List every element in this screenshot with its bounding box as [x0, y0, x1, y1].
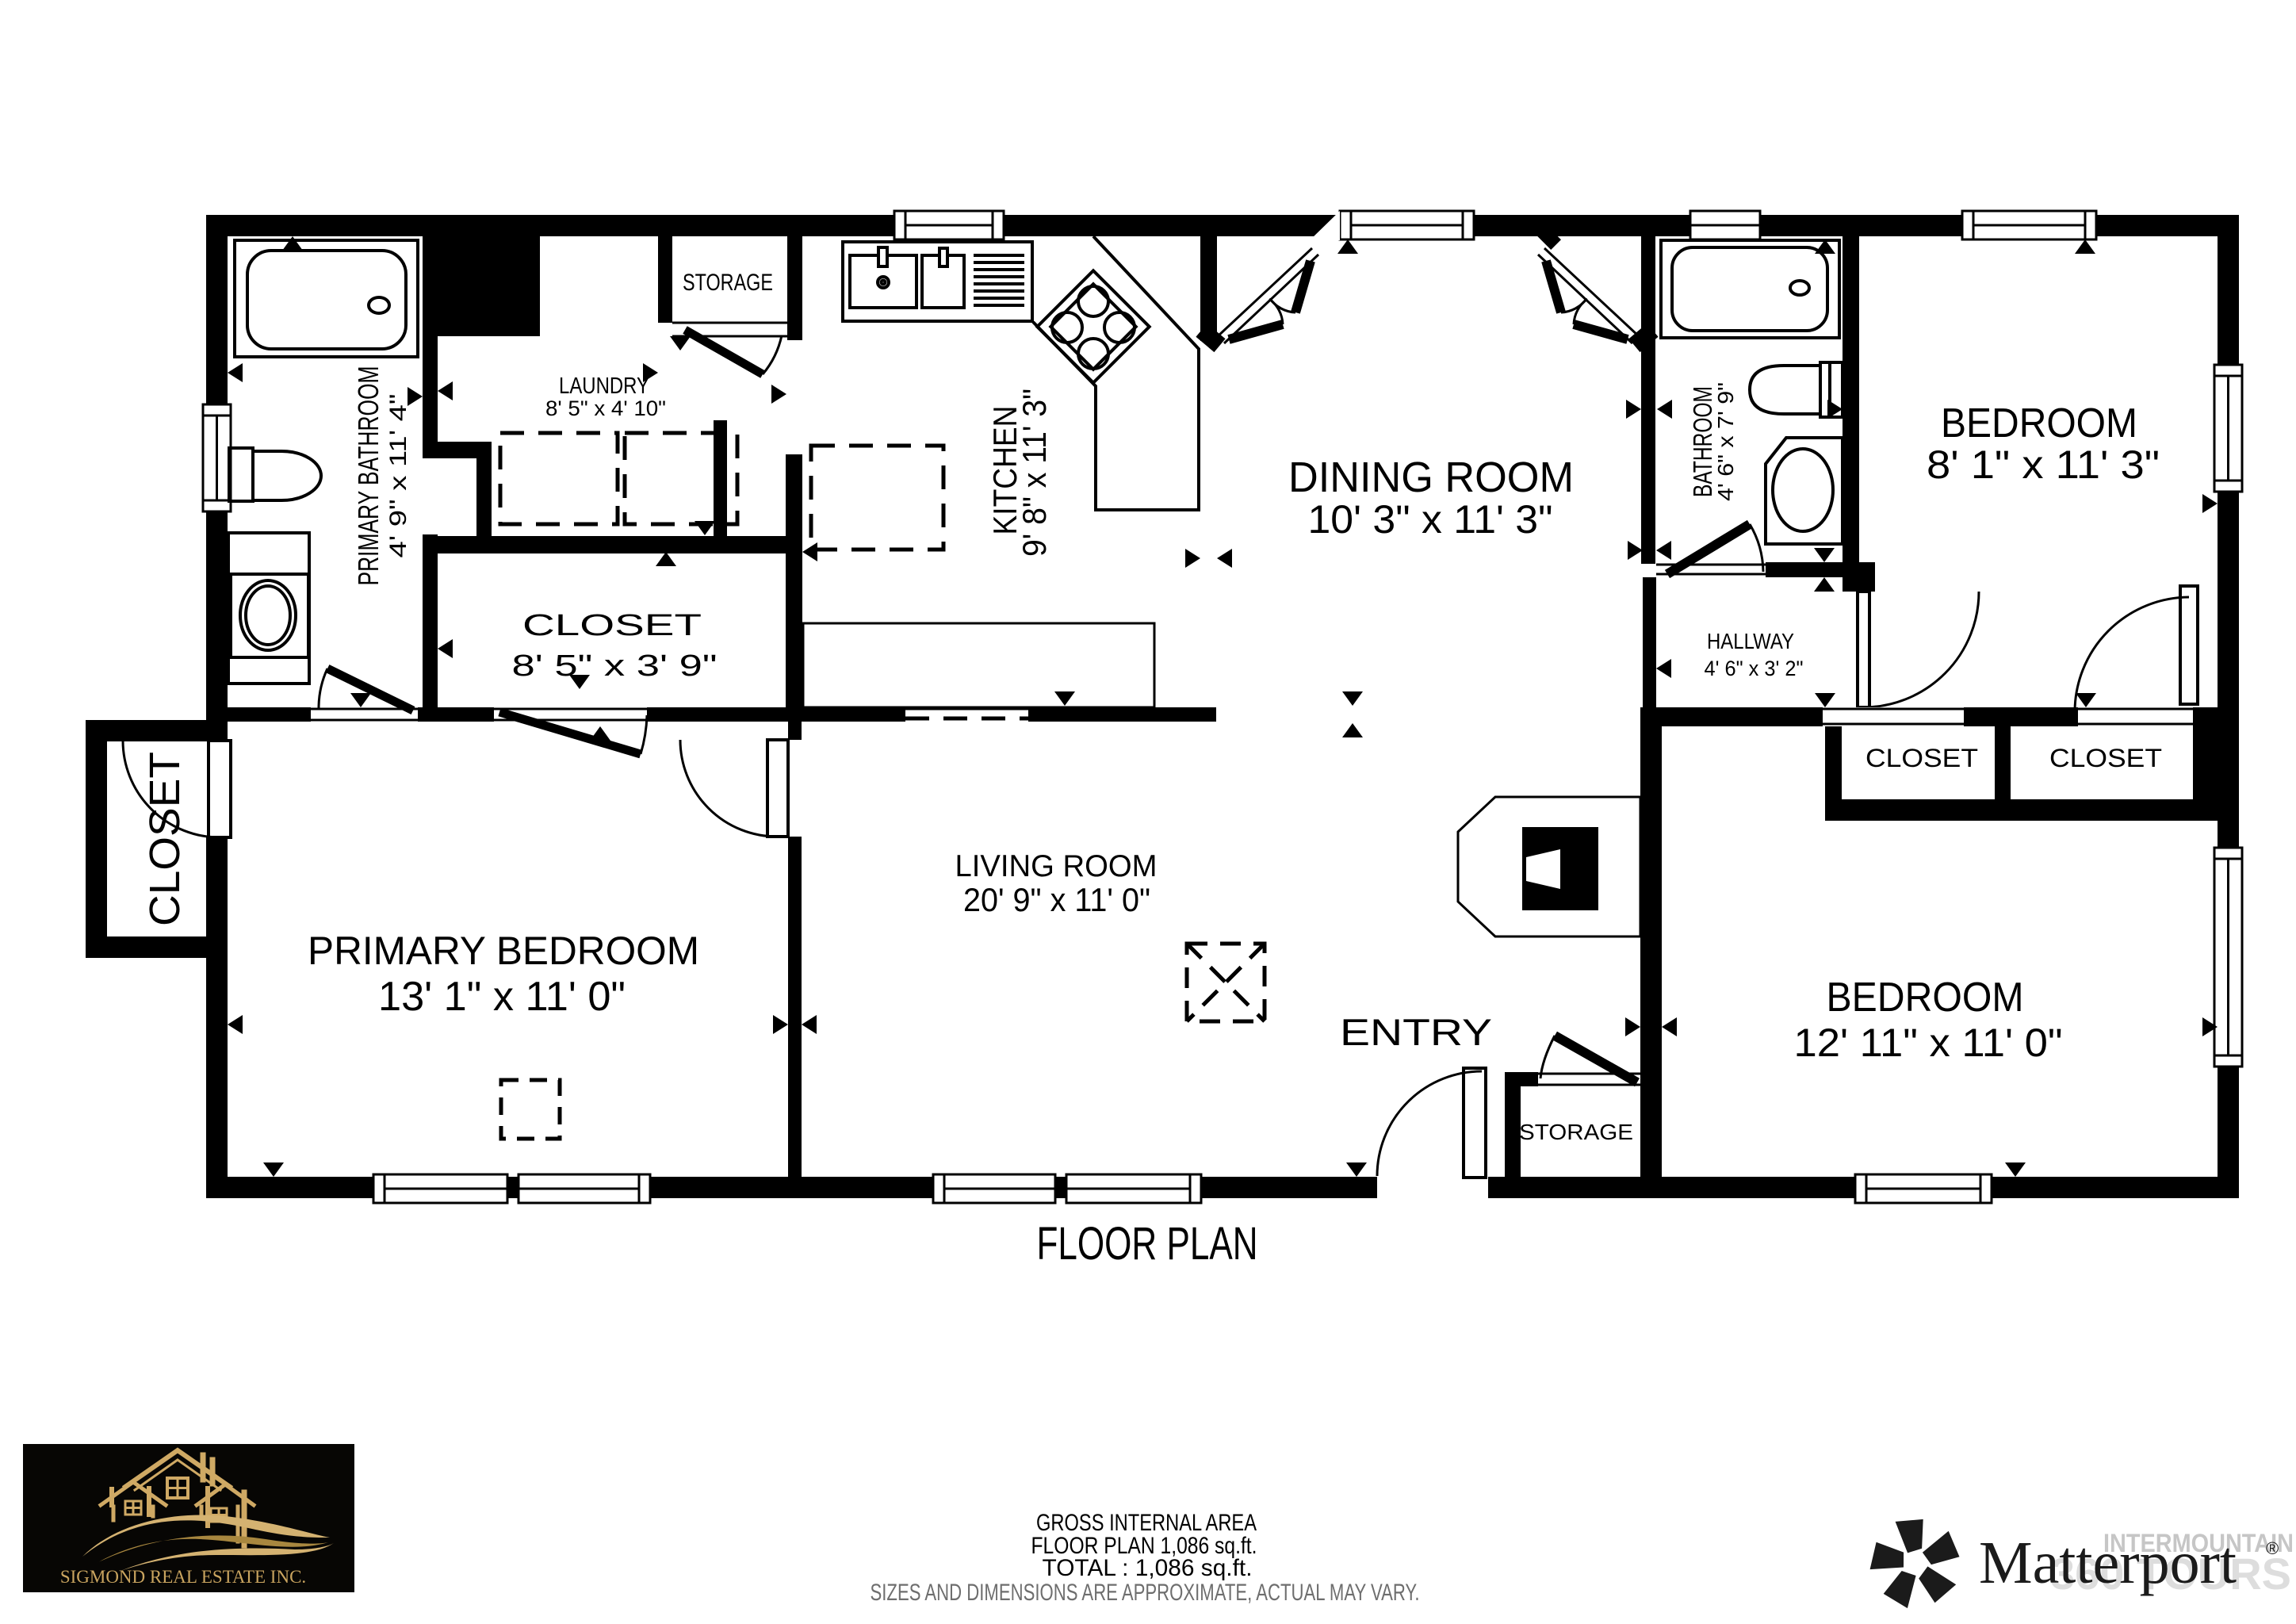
svg-text:8' 5" x 4' 10": 8' 5" x 4' 10"	[545, 396, 666, 420]
svg-text:®: ®	[2266, 1538, 2279, 1558]
svg-text:BEDROOM: BEDROOM	[1941, 400, 2137, 446]
svg-text:CLOSET: CLOSET	[1865, 744, 1978, 772]
svg-text:9' 8" x 11' 3": 9' 8" x 11' 3"	[1016, 389, 1053, 557]
svg-text:SIZES AND DIMENSIONS ARE APPRO: SIZES AND DIMENSIONS ARE APPROXIMATE, AC…	[871, 1580, 1420, 1606]
svg-text:PRIMARY BATHROOM: PRIMARY BATHROOM	[352, 366, 385, 586]
svg-text:4' 6" x 7' 9": 4' 6" x 7' 9"	[1713, 382, 1738, 501]
svg-text:FLOOR PLAN: FLOOR PLAN	[1037, 1218, 1258, 1270]
svg-text:4' 9" x 11' 4": 4' 9" x 11' 4"	[385, 394, 411, 558]
svg-text:HALLWAY: HALLWAY	[1707, 629, 1794, 653]
svg-text:10' 3" x 11' 3": 10' 3" x 11' 3"	[1308, 497, 1553, 542]
svg-text:8' 1" x 11' 3": 8' 1" x 11' 3"	[1927, 442, 2160, 487]
svg-text:12' 11" x 11' 0": 12' 11" x 11' 0"	[1794, 1021, 2063, 1065]
svg-text:CLOSET: CLOSET	[522, 609, 702, 642]
svg-text:LIVING ROOM: LIVING ROOM	[955, 849, 1158, 883]
svg-text:Matterport: Matterport	[1979, 1530, 2237, 1596]
svg-text:DINING ROOM: DINING ROOM	[1288, 454, 1574, 501]
svg-text:20' 9" x 11' 0": 20' 9" x 11' 0"	[963, 881, 1150, 918]
svg-text:TOTAL : 1,086 sq.ft.: TOTAL : 1,086 sq.ft.	[1043, 1555, 1253, 1581]
svg-text:CLOSET: CLOSET	[141, 752, 189, 926]
svg-text:8' 5" x 3' 9": 8' 5" x 3' 9"	[512, 649, 717, 683]
svg-text:STORAGE: STORAGE	[683, 270, 773, 296]
svg-text:SIGMOND REAL ESTATE INC.: SIGMOND REAL ESTATE INC.	[60, 1567, 306, 1587]
svg-text:CLOSET: CLOSET	[2049, 744, 2162, 772]
svg-text:STORAGE: STORAGE	[1519, 1120, 1633, 1144]
svg-text:4' 6" x 3' 2": 4' 6" x 3' 2"	[1705, 657, 1804, 680]
svg-text:LAUNDRY: LAUNDRY	[559, 373, 649, 399]
svg-text:BEDROOM: BEDROOM	[1827, 975, 2024, 1021]
svg-text:ENTRY: ENTRY	[1340, 1011, 1492, 1053]
svg-text:PRIMARY BEDROOM: PRIMARY BEDROOM	[308, 929, 699, 973]
svg-text:13' 1" x 11' 0": 13' 1" x 11' 0"	[378, 974, 626, 1020]
